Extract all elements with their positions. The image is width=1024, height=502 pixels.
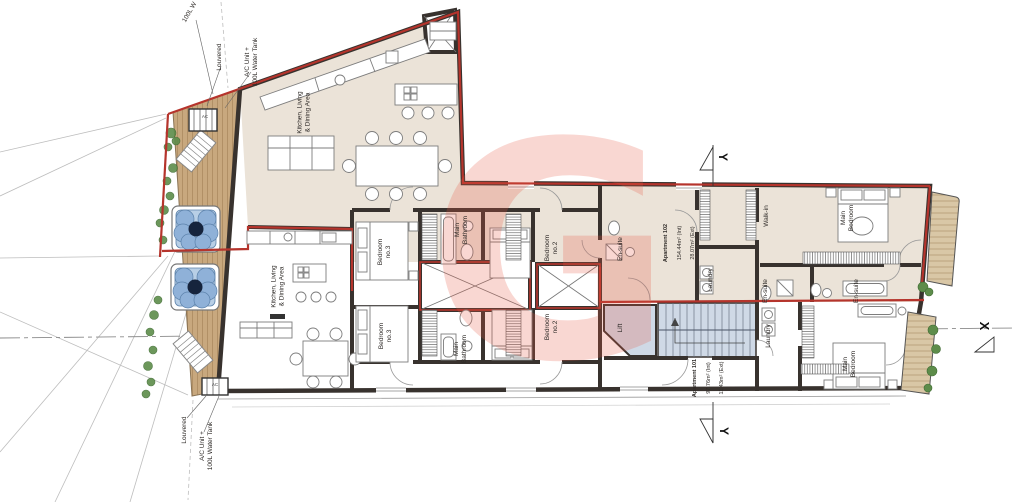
hot-tub-bottom xyxy=(171,264,219,310)
balcony-bottom-right xyxy=(901,312,941,394)
hot-tub-top xyxy=(172,206,220,252)
section-marker-y-top xyxy=(700,145,713,186)
section-marker-x xyxy=(975,337,994,352)
stair-lift-core xyxy=(604,303,756,357)
plants xyxy=(142,128,180,398)
floor-plan-page: G 100L W Louvered A/C Unit + 100L Water … xyxy=(0,0,1024,502)
floor-plan-drawing xyxy=(0,0,1024,502)
section-marker-y-bottom xyxy=(700,402,713,443)
building-floor xyxy=(218,12,930,391)
